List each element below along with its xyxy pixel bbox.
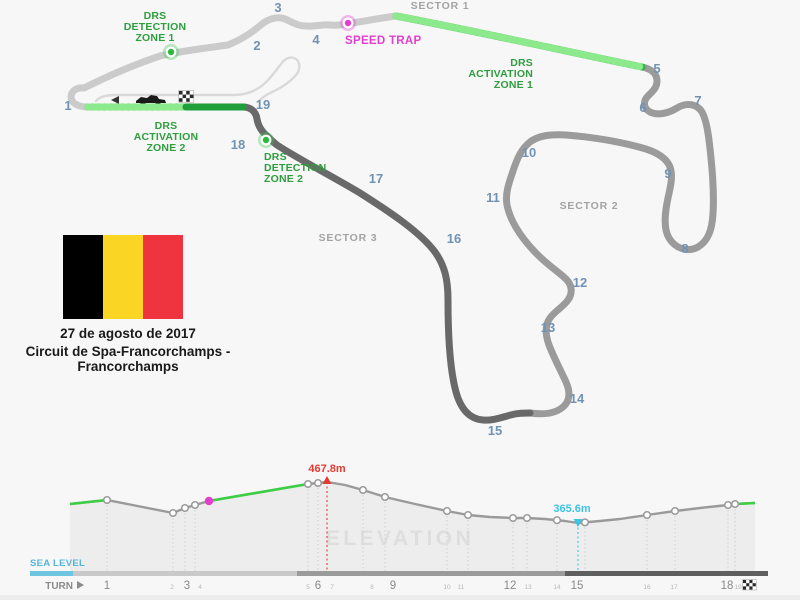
svg-text:ZONE 2: ZONE 2: [264, 173, 303, 185]
turn-number-12: 12: [573, 275, 587, 290]
svg-text:ZONE 1: ZONE 1: [135, 32, 174, 44]
axis-turn-6: 6: [315, 580, 321, 592]
axis-bar-segment: [30, 571, 73, 576]
elevation-turn-node: [725, 502, 732, 509]
elevation-turn-node: [192, 502, 199, 509]
elevation-speed-trap-dot: [205, 497, 213, 505]
axis-turn-2: 2: [170, 584, 174, 591]
turn-number-3: 3: [274, 0, 281, 15]
turn-number-8: 8: [681, 241, 688, 256]
axis-turn-17: 17: [670, 584, 678, 591]
axis-bar-segment: [73, 571, 297, 576]
turn-number-1: 1: [64, 98, 71, 113]
axis-turn-5: 5: [306, 584, 310, 591]
turn-number-6: 6: [639, 100, 646, 115]
elevation-turn-node: [644, 512, 651, 519]
left-arrow-icon: [111, 96, 119, 104]
event-date: 27 de agosto de 2017: [0, 326, 256, 341]
flag-band-red: [143, 235, 183, 319]
axis-turn-19: 19: [734, 584, 742, 591]
flag-band-black: [63, 235, 103, 319]
spa-circuit-infographic: SECTOR 1SECTOR 2SECTOR 31234567891011121…: [0, 0, 800, 600]
turn-number-16: 16: [447, 231, 461, 246]
axis-turn-9: 9: [390, 580, 396, 592]
circuit-name: Circuit de Spa-Francorchamps - Francorch…: [0, 344, 256, 374]
max-elevation-label: 467.8m: [308, 463, 346, 475]
event-info: 27 de agosto de 2017 Circuit de Spa-Fran…: [0, 326, 256, 374]
speed-trap-marker: [340, 15, 356, 31]
axis-turn-7: 7: [330, 584, 334, 591]
speed-trap-label: SPEED TRAP: [345, 35, 422, 47]
turn-number-9: 9: [664, 166, 671, 181]
axis-turn-16: 16: [643, 584, 651, 591]
sector-label-3: SECTOR 3: [319, 232, 378, 244]
turn-number-7: 7: [694, 93, 701, 108]
axis-turn-18: 18: [721, 580, 734, 592]
svg-text:ZONE 2: ZONE 2: [146, 142, 185, 154]
axis-turn-1: 1: [104, 580, 110, 592]
svg-text:ZONE 1: ZONE 1: [494, 79, 533, 91]
turn-number-10: 10: [522, 145, 536, 160]
turn-number-13: 13: [541, 320, 555, 335]
sector-label-1: SECTOR 1: [411, 0, 470, 12]
axis-turn-10: 10: [443, 584, 451, 591]
axis-turn-3: 3: [184, 580, 190, 592]
elevation-turn-node: [582, 519, 589, 526]
flag-band-yellow: [103, 235, 143, 319]
elevation-turn-node: [672, 508, 679, 515]
turn-number-14: 14: [570, 391, 585, 406]
axis-turn-15: 15: [571, 580, 584, 592]
turn-axis-label: TURN: [45, 581, 73, 592]
drs-detection-zone-1-marker: [163, 44, 179, 60]
drs-activation-zone-2-label: DRSACTIVATIONZONE 2: [134, 120, 199, 154]
belgium-flag: [63, 235, 183, 319]
elevation-turn-node: [360, 487, 367, 494]
elevation-turn-node: [170, 510, 177, 517]
turn-number-17: 17: [369, 171, 383, 186]
turn-number-2: 2: [253, 38, 260, 53]
drs-activation-zone-1-label: DRSACTIVATIONZONE 1: [468, 57, 533, 91]
max-elevation-marker: [323, 476, 332, 484]
footer-strip: [0, 595, 800, 600]
finish-checkered-flag-icon: [743, 580, 757, 590]
axis-bar-segment: [565, 571, 768, 576]
elevation-turn-node: [732, 501, 739, 508]
turn-number-15: 15: [488, 423, 502, 438]
elevation-turn-node: [554, 517, 561, 524]
drs-detection-zone-1-label: DRSDETECTIONZONE 1: [124, 10, 186, 44]
turn-axis-arrow-icon: [77, 581, 84, 589]
axis-turn-13: 13: [524, 584, 532, 591]
elevation-turn-node: [104, 497, 111, 504]
elevation-turn-node: [465, 512, 472, 519]
turn-number-4: 4: [312, 32, 320, 47]
axis-turn-4: 4: [198, 584, 202, 591]
axis-turn-12: 12: [504, 580, 517, 592]
sea-level-label: SEA LEVEL: [30, 558, 85, 569]
sector-label-2: SECTOR 2: [560, 200, 619, 212]
min-elevation-label: 365.6m: [553, 503, 591, 515]
pit-lane-path: [96, 58, 299, 102]
elevation-turn-node: [305, 481, 312, 488]
elevation-turn-node: [315, 480, 322, 487]
axis-turn-8: 8: [370, 584, 374, 591]
elevation-turn-node: [382, 494, 389, 501]
checkered-flag-icon: [179, 91, 194, 103]
elevation-turn-node: [444, 508, 451, 515]
elevation-turn-node: [524, 515, 531, 522]
turn-number-5: 5: [653, 61, 660, 76]
turn-number-18: 18: [231, 137, 245, 152]
elevation-turn-node: [510, 515, 517, 522]
elevation-watermark: ELEVATION: [326, 527, 475, 550]
axis-turn-14: 14: [553, 584, 561, 591]
axis-bar-segment: [297, 571, 565, 576]
elevation-chart: ELEVATION467.8m365.6mSEA LEVELTURN123456…: [30, 463, 768, 592]
turn-number-19: 19: [256, 97, 270, 112]
turn-number-11: 11: [486, 190, 500, 205]
elevation-turn-node: [182, 505, 189, 512]
drs-detection-zone-2-marker: [258, 132, 274, 148]
axis-turn-11: 11: [458, 584, 465, 591]
